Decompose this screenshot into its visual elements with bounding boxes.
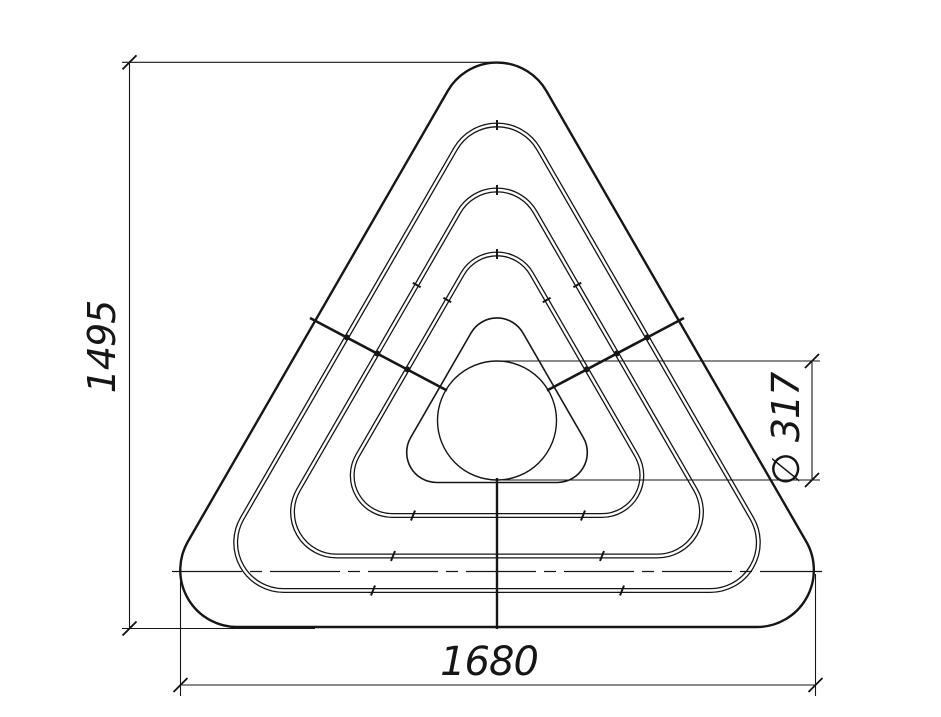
height-dimension-label: 1495 bbox=[80, 301, 124, 394]
leader-lines bbox=[310, 318, 684, 391]
width-dimension-label: 1680 bbox=[440, 639, 538, 685]
right-leader-dot-1 bbox=[644, 334, 650, 340]
drawing-canvas: 1495 1680 ∅ 317 bbox=[0, 0, 941, 717]
diameter-dimension-label: ∅ 317 bbox=[764, 372, 808, 486]
center-hub-circle bbox=[438, 361, 557, 480]
centerlines bbox=[172, 478, 822, 629]
right-leader-dot-3 bbox=[584, 366, 590, 372]
dimension-height: 1495 bbox=[80, 55, 497, 635]
left-leader-dot-1 bbox=[344, 334, 350, 340]
left-leader-dot-2 bbox=[374, 351, 380, 357]
technical-drawing: 1495 1680 ∅ 317 bbox=[0, 0, 941, 717]
left-leader-dot-3 bbox=[404, 366, 410, 372]
right-leader-dot-2 bbox=[614, 351, 620, 357]
inner-triangle-profile bbox=[407, 318, 588, 483]
triangle-ring-4-outline bbox=[352, 254, 642, 516]
